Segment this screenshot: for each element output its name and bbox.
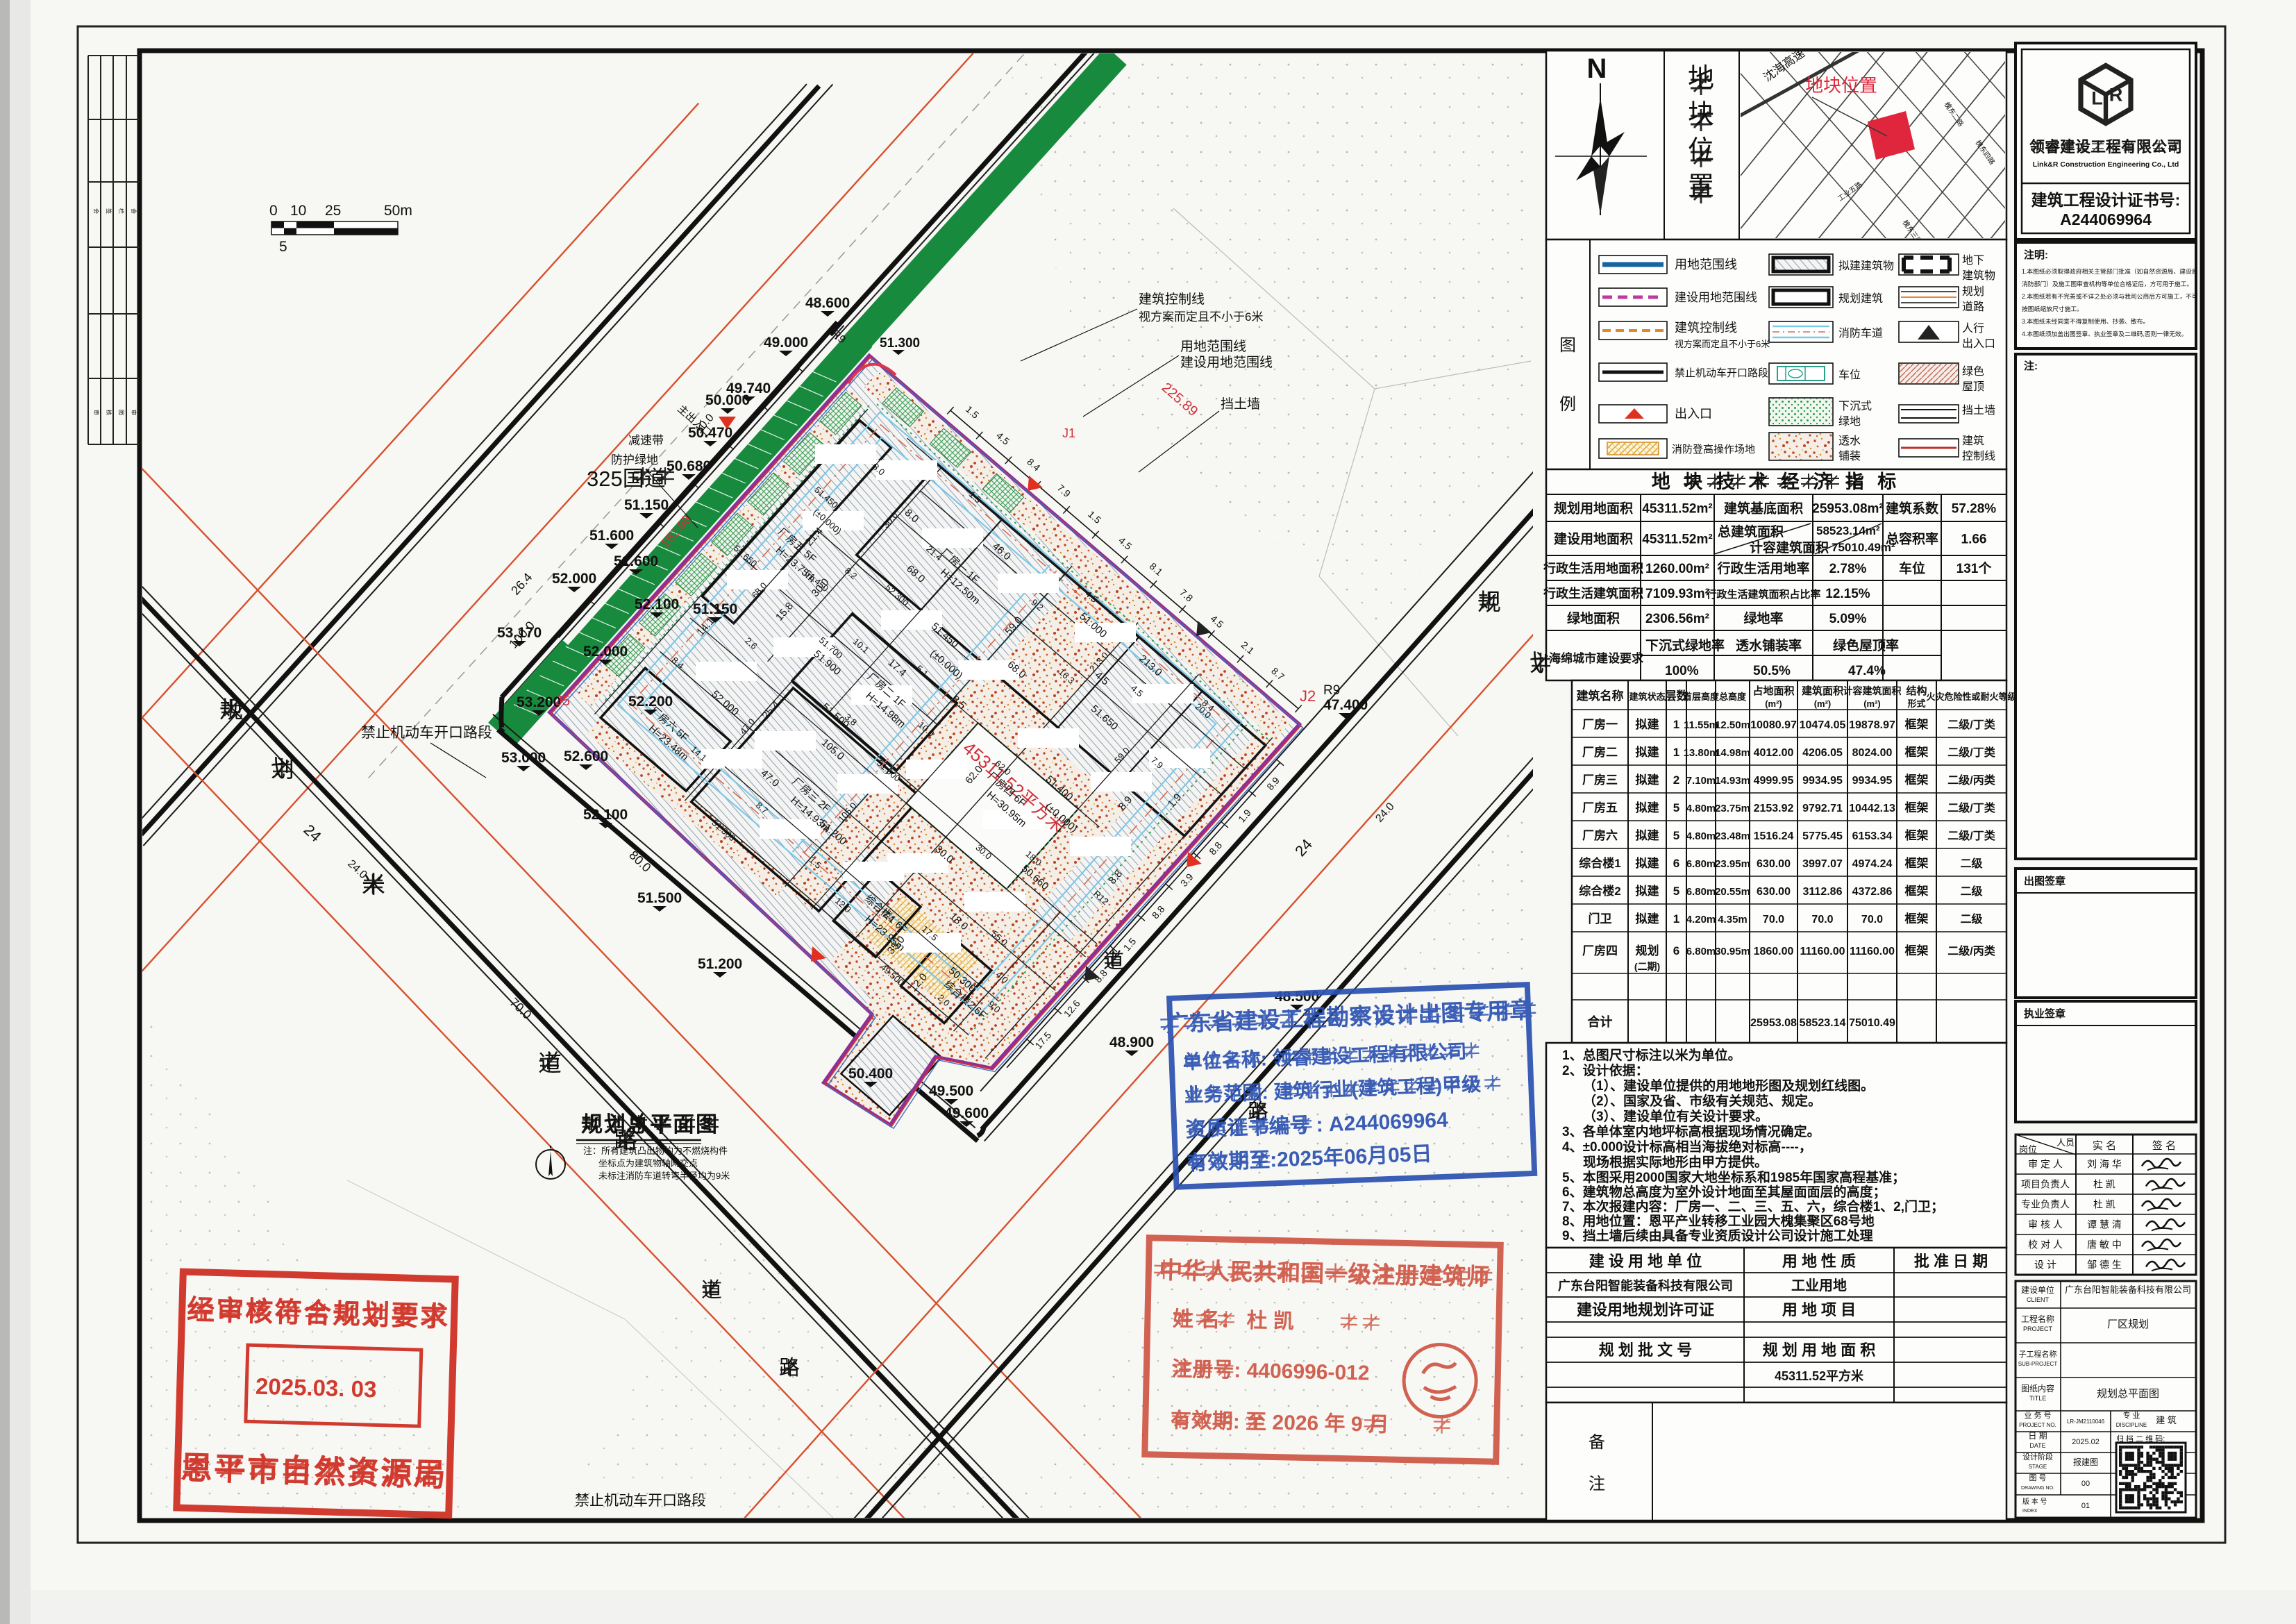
svg-text:00: 00 (2081, 1480, 2090, 1488)
svg-text:9792.71: 9792.71 (1802, 803, 1843, 814)
svg-text:二级/丁类: 二级/丁类 (1947, 801, 1995, 814)
svg-text:结构: 结构 (1906, 685, 1927, 697)
svg-text:拟建建筑物: 拟建建筑物 (1838, 260, 1894, 272)
svg-text:10: 10 (290, 203, 306, 219)
svg-text:30.95m: 30.95m (1715, 946, 1750, 957)
svg-text:49.600: 49.600 (944, 1105, 989, 1121)
svg-text:刘 海 华: 刘 海 华 (2087, 1159, 2122, 1170)
svg-text:3112.86: 3112.86 (1803, 886, 1843, 898)
svg-text:1516.24: 1516.24 (1754, 830, 1794, 842)
svg-text:6.80m: 6.80m (1686, 946, 1716, 957)
svg-text:绿地面积: 绿地面积 (1567, 610, 1620, 626)
svg-text:DATE: DATE (2029, 1442, 2045, 1449)
svg-text:规划用地面积: 规划用地面积 (1554, 501, 1633, 517)
svg-text:拟建: 拟建 (1636, 745, 1659, 759)
svg-text:7.10m: 7.10m (1686, 775, 1716, 787)
svg-text:建设用地规划许可证: 建设用地规划许可证 (1577, 1301, 1714, 1319)
svg-text:52.100: 52.100 (583, 807, 628, 823)
svg-text:综合楼1: 综合楼1 (1579, 856, 1620, 870)
svg-text:70.0: 70.0 (1763, 914, 1784, 926)
svg-text:STAGE: STAGE (2029, 1464, 2047, 1470)
svg-text:综合楼2: 综合楼2 (1579, 884, 1620, 898)
svg-text:14.98m: 14.98m (1715, 747, 1750, 759)
svg-text:70.0: 70.0 (1811, 914, 1833, 926)
svg-text:二级: 二级 (1960, 885, 1983, 898)
svg-text:5: 5 (279, 239, 287, 255)
svg-text:铺装: 铺装 (1838, 450, 1861, 462)
svg-text:58523.14m²: 58523.14m² (1816, 524, 1880, 537)
svg-text:A244069964: A244069964 (2060, 210, 2152, 228)
svg-text:12.15%: 12.15% (1825, 587, 1870, 601)
svg-text:25953.08: 25953.08 (1750, 1017, 1797, 1029)
svg-text:总高度: 总高度 (1719, 692, 1747, 702)
svg-text:禁止机动车开口路段: 禁止机动车开口路段 (1675, 367, 1768, 379)
svg-text:CLIENT: CLIENT (2027, 1296, 2050, 1303)
svg-text:4.80m: 4.80m (1686, 803, 1716, 814)
svg-text:4.80m: 4.80m (1686, 830, 1716, 842)
svg-text:框架: 框架 (1905, 828, 1929, 842)
svg-text:二级/丁类: 二级/丁类 (1947, 746, 1995, 759)
svg-text:形式: 形式 (1907, 698, 1925, 709)
svg-text:48.600: 48.600 (805, 295, 850, 311)
svg-text:4、±0.000设计标高相当海拔绝对标高----，: 4、±0.000设计标高相当海拔绝对标高----， (1562, 1139, 1812, 1155)
svg-text:签 名: 签 名 (2152, 1140, 2176, 1152)
svg-text:下沉式: 下沉式 (1838, 400, 1872, 412)
svg-text:51.150: 51.150 (693, 601, 737, 617)
svg-text:51.300: 51.300 (880, 336, 920, 351)
svg-text:二级/丁类: 二级/丁类 (1947, 829, 1995, 842)
svg-text:11160.00: 11160.00 (1850, 946, 1895, 957)
svg-text:1.本图纸必须取得政府相关主管部门批准（如自然资源局、建设局: 1.本图纸必须取得政府相关主管部门批准（如自然资源局、建设局 (2022, 267, 2198, 275)
svg-text:48.900: 48.900 (1109, 1035, 1154, 1050)
svg-text:拟建: 拟建 (1636, 773, 1659, 787)
svg-text:6、建筑物总高度为室外设计地面至其屋面面层的高度；: 6、建筑物总高度为室外设计地面至其屋面面层的高度； (1562, 1184, 1886, 1200)
svg-text:52.100: 52.100 (635, 596, 679, 612)
svg-text:4012.00: 4012.00 (1754, 747, 1794, 759)
svg-text:25953.08m²: 25953.08m² (1812, 502, 1883, 517)
svg-text:2.本图纸若有不完善或不详之处必须与我司公商后方可施工，不可: 2.本图纸若有不完善或不详之处必须与我司公商后方可施工，不可 (2022, 292, 2198, 300)
svg-text:透水铺装率: 透水铺装率 (1736, 637, 1802, 653)
svg-text:框架: 框架 (1905, 717, 1929, 731)
svg-text:图 号: 图 号 (2029, 1473, 2046, 1482)
svg-text:1、总图尺寸标注以米为单位。: 1、总图尺寸标注以米为单位。 (1562, 1047, 1741, 1063)
svg-text:规划: 规划 (1962, 285, 1984, 298)
svg-text:禁止机动车开口路段: 禁止机动车开口路段 (575, 1493, 706, 1509)
svg-text:建设用地面积: 建设用地面积 (1554, 531, 1633, 547)
svg-text:52.600: 52.600 (564, 748, 608, 764)
svg-text:2.78%: 2.78% (1829, 562, 1867, 576)
svg-text:6.80m: 6.80m (1686, 886, 1716, 898)
svg-text:地块位置: 地块位置 (1805, 75, 1877, 96)
svg-text:谭 慧 清: 谭 慧 清 (2087, 1219, 2122, 1230)
svg-text:6.80m: 6.80m (1686, 858, 1716, 870)
svg-text:拟建: 拟建 (1636, 828, 1659, 842)
svg-text:1: 1 (1673, 912, 1679, 926)
svg-text:占地面积: 占地面积 (1752, 685, 1794, 697)
svg-text:厂房二: 厂房二 (1582, 745, 1618, 759)
svg-text:设 计: 设 计 (2034, 1259, 2056, 1271)
svg-text:11160.00: 11160.00 (1800, 946, 1845, 957)
svg-text:框架: 框架 (1905, 856, 1929, 870)
svg-text:J1: J1 (1062, 426, 1075, 440)
svg-text:绿色屋顶率: 绿色屋顶率 (1833, 637, 1899, 653)
svg-text:批 准 日 期: 批 准 日 期 (1914, 1253, 1988, 1270)
svg-text:规划建筑: 规划建筑 (1838, 292, 1883, 305)
svg-text:PROJECT NO.: PROJECT NO. (2019, 1422, 2056, 1428)
svg-text:建筑工程设计证书号:: 建筑工程设计证书号: (2031, 191, 2181, 209)
svg-text:会: 会 (131, 208, 137, 214)
svg-text:二级/丙类: 二级/丙类 (1947, 773, 1995, 787)
svg-text:7、本次报建内容：厂房一、二、三、五、六，综合楼1、2,门卫: 7、本次报建内容：厂房一、二、三、五、六，综合楼1、2,门卫； (1562, 1198, 1944, 1214)
svg-text:行政生活用地面积: 行政生活用地面积 (1543, 561, 1643, 576)
svg-text:专 业: 专 业 (2122, 1410, 2140, 1420)
svg-text:10080.97: 10080.97 (1750, 719, 1797, 731)
svg-text:专业负责人: 专业负责人 (2021, 1199, 2070, 1210)
svg-text:建筑基底面积: 建筑基底面积 (1724, 501, 1803, 517)
svg-text:建筑名称: 建筑名称 (1577, 689, 1624, 703)
svg-text:注:: 注: (2024, 360, 2038, 372)
svg-text:建筑物: 建筑物 (1962, 269, 1995, 282)
svg-text:规划总平面图: 规划总平面图 (2097, 1388, 2159, 1400)
svg-text:注明:: 注明: (2024, 249, 2048, 261)
svg-text:二级: 二级 (1960, 857, 1983, 870)
svg-text:INDEX: INDEX (2022, 1509, 2038, 1514)
svg-text:车位: 车位 (1899, 560, 1925, 576)
svg-text:版 本 号: 版 本 号 (2022, 1497, 2047, 1506)
svg-text:2: 2 (1673, 773, 1679, 787)
svg-text:人员: 人员 (2056, 1137, 2075, 1148)
svg-text:建筑面积: 建筑面积 (1802, 685, 1843, 697)
svg-text:二级: 二级 (1960, 912, 1983, 926)
svg-text:行政生活建筑面积: 行政生活建筑面积 (1543, 586, 1643, 601)
svg-text:12.50m: 12.50m (1715, 719, 1750, 731)
svg-text:5: 5 (1673, 829, 1679, 842)
svg-text:执业签章: 执业签章 (2024, 1007, 2065, 1020)
svg-text:框架: 框架 (1905, 884, 1929, 898)
svg-text:1260.00m²: 1260.00m² (1645, 562, 1709, 576)
svg-text:3.本图纸未经同意不得复制使用、抄袭、散布。: 3.本图纸未经同意不得复制使用、抄袭、散布。 (2022, 317, 2149, 325)
svg-text:下沉式绿地率: 下沉式绿地率 (1645, 637, 1725, 653)
svg-text:9、挡土墙后续由具备专业资质设计公司设计施工处理: 9、挡土墙后续由具备专业资质设计公司设计施工处理 (1562, 1228, 1873, 1244)
svg-text:建筑控制线: 建筑控制线 (1675, 321, 1737, 335)
svg-text:52.200: 52.200 (628, 694, 673, 710)
svg-text:4999.95: 4999.95 (1754, 775, 1794, 787)
svg-text:2、设计依据：: 2、设计依据： (1562, 1062, 1649, 1078)
svg-text:厂房六: 厂房六 (1582, 828, 1618, 842)
svg-text:建设用地范围线: 建设用地范围线 (1180, 355, 1273, 370)
svg-text:规划总平面图: 规划总平面图 (581, 1112, 719, 1137)
svg-text:PROJECT: PROJECT (2023, 1325, 2053, 1332)
svg-text:挡土墙: 挡土墙 (1962, 404, 1995, 417)
svg-text:5: 5 (1673, 801, 1679, 814)
svg-text:会: 会 (93, 208, 100, 214)
svg-text:52.000: 52.000 (583, 644, 628, 660)
svg-text:47.4%: 47.4% (1848, 664, 1886, 678)
svg-text:广东台阳智能装备科技有限公司: 广东台阳智能装备科技有限公司 (2065, 1284, 2191, 1295)
svg-text:二级/丙类: 二级/丙类 (1947, 944, 1995, 957)
svg-text:签: 签 (106, 208, 112, 214)
svg-text:出图签章: 出图签章 (2024, 875, 2065, 887)
svg-text:屋顶: 屋顶 (1962, 380, 1984, 393)
svg-text:3、各单体室内地坪标高根据现场情况确定。: 3、各单体室内地坪标高根据现场情况确定。 (1562, 1123, 1820, 1139)
svg-text:5.09%: 5.09% (1829, 612, 1867, 626)
svg-text:4372.86: 4372.86 (1852, 886, 1893, 898)
svg-text:52.000: 52.000 (552, 571, 596, 587)
svg-text:建 设 用 地 单 位: 建 设 用 地 单 位 (1589, 1253, 1702, 1270)
svg-text:未标注消防车道转弯半径均为9米: 未标注消防车道转弯半径均为9米 (598, 1171, 730, 1181)
svg-text:透水: 透水 (1838, 435, 1861, 447)
svg-text:1860.00: 1860.00 (1754, 946, 1794, 957)
svg-text:注: 注 (1589, 1475, 1605, 1493)
svg-text:51.200: 51.200 (698, 956, 742, 972)
svg-text:58523.14: 58523.14 (1800, 1017, 1846, 1029)
svg-text:10442.13: 10442.13 (1849, 803, 1895, 814)
svg-text:厂房一: 厂房一 (1582, 717, 1618, 731)
svg-text:姓 名： 杜 凯: 姓 名： 杜 凯 (1173, 1307, 1295, 1333)
svg-text:6: 6 (1673, 944, 1679, 957)
svg-text:防护绿地: 防护绿地 (611, 453, 658, 467)
svg-text:行政生活用地率: 行政生活用地率 (1716, 560, 1809, 576)
svg-text:车位: 车位 (1838, 369, 1861, 381)
svg-text:4.本图纸须加盖出图签章、执业签章及二维码,否则一律无效。: 4.本图纸须加盖出图签章、执业签章及二维码,否则一律无效。 (2022, 330, 2188, 337)
svg-text:7109.93m²: 7109.93m² (1645, 587, 1709, 601)
svg-text:4974.24: 4974.24 (1852, 858, 1893, 870)
svg-text:厂房三: 厂房三 (1582, 773, 1618, 787)
svg-text:23.48m: 23.48m (1715, 830, 1750, 842)
svg-text:53.000: 53.000 (501, 750, 546, 766)
svg-text:拟建: 拟建 (1636, 801, 1659, 814)
svg-text:10474.05: 10474.05 (1800, 719, 1846, 731)
svg-text:25: 25 (325, 203, 341, 219)
svg-text:3997.07: 3997.07 (1802, 858, 1843, 870)
svg-text:4.35m: 4.35m (1718, 914, 1748, 926)
svg-text:49.500: 49.500 (929, 1083, 973, 1099)
svg-text:绿地: 绿地 (1838, 415, 1861, 428)
svg-text:消防车道: 消防车道 (1838, 327, 1883, 340)
svg-text:杜 凯: 杜 凯 (2093, 1199, 2115, 1210)
svg-text:栏: 栏 (118, 208, 125, 214)
svg-text:20.55m: 20.55m (1715, 886, 1750, 898)
svg-text:1: 1 (1673, 718, 1679, 731)
svg-text:控制线: 控制线 (1962, 450, 1995, 462)
svg-text:拟建: 拟建 (1636, 884, 1659, 898)
svg-text:厂房四: 厂房四 (1582, 944, 1618, 957)
svg-text:13.80m: 13.80m (1684, 747, 1719, 759)
svg-text:拟建: 拟建 (1636, 717, 1659, 731)
svg-text:(二期): (二期) (1634, 961, 1660, 972)
svg-text:审 核 人: 审 核 人 (2028, 1219, 2063, 1230)
svg-text:框架: 框架 (1905, 944, 1929, 957)
svg-text:8、用地位置：恩平产业转移工业园大槐集聚区68号地: 8、用地位置：恩平产业转移工业园大槐集聚区68号地 (1562, 1213, 1875, 1229)
svg-text:DRAWING NO.: DRAWING NO. (2021, 1486, 2054, 1491)
svg-text:630.00: 630.00 (1757, 858, 1791, 870)
svg-text:火灾危险性或耐火等级: 火灾危险性或耐火等级 (1926, 692, 2017, 702)
svg-text:（3）、建设单位有关设计要求。: （3）、建设单位有关设计要求。 (1583, 1108, 1768, 1124)
svg-text:规 划 用 地 面 积: 规 划 用 地 面 积 (1763, 1341, 1876, 1359)
svg-text:图纸内容: 图纸内容 (2021, 1383, 2054, 1393)
svg-text:0: 0 (269, 203, 278, 219)
svg-text:建 筑: 建 筑 (2156, 1415, 2177, 1425)
svg-text:2025.03. 03: 2025.03. 03 (255, 1373, 377, 1403)
svg-text:道路: 道路 (1962, 301, 1984, 313)
svg-text:项目负责人: 项目负责人 (2021, 1179, 2070, 1190)
svg-text:45311.52m²: 45311.52m² (1642, 533, 1712, 547)
svg-text:用地范围线: 用地范围线 (1180, 339, 1246, 354)
svg-text:消防部门）及施工图审查机构等单位合格证后，方可用于施工。: 消防部门）及施工图审查机构等单位合格证后，方可用于施工。 (2022, 280, 2193, 287)
svg-text:审 定 人: 审 定 人 (2028, 1159, 2063, 1170)
svg-text:地 块 技 术 经 济 指 标: 地 块 技 术 经 济 指 标 (1652, 471, 1901, 492)
svg-text:SUB-PROJECT: SUB-PROJECT (2018, 1361, 2058, 1367)
svg-text:框架: 框架 (1905, 745, 1929, 759)
svg-text:建筑状态: 建筑状态 (1629, 692, 1665, 702)
svg-text:行政生活建筑面积占比率: 行政生活建筑面积占比率 (1705, 588, 1820, 601)
svg-text:131个: 131个 (1956, 561, 1993, 576)
svg-text:视方案而定且不小于6米: 视方案而定且不小于6米 (1139, 310, 1263, 324)
svg-text:工业用地: 工业用地 (1791, 1278, 1847, 1294)
svg-text:实 名: 实 名 (2093, 1140, 2116, 1152)
svg-text:绿色: 绿色 (1962, 365, 1984, 378)
svg-text:消防登高操作场地: 消防登高操作场地 (1672, 444, 1755, 455)
svg-text:(m²): (m²) (1765, 698, 1782, 709)
svg-text:坐标点为建筑物轴网交点: 坐标点为建筑物轴网交点 (598, 1158, 698, 1169)
svg-text:11.55m: 11.55m (1684, 719, 1718, 731)
svg-text:50m: 50m (384, 203, 412, 219)
svg-text:现场根据实际地形由甲方提供。: 现场根据实际地形由甲方提供。 (1583, 1154, 1768, 1170)
svg-text:总容积率: 总容积率 (1886, 531, 1938, 547)
svg-text:核: 核 (106, 410, 112, 415)
svg-text:DISCIPLINE: DISCIPLINE (2116, 1422, 2147, 1428)
svg-text:子工程名称: 子工程名称 (2019, 1349, 2057, 1359)
svg-text:邹 德 生: 邹 德 生 (2087, 1259, 2122, 1271)
svg-text:用 地 项 目: 用 地 项 目 (1782, 1301, 1856, 1319)
svg-text:LR-JM2110046: LR-JM2110046 (2067, 1418, 2105, 1425)
svg-text:19878.97: 19878.97 (1849, 719, 1895, 731)
svg-text:J2: J2 (1300, 687, 1316, 705)
svg-text:4.20m: 4.20m (1686, 914, 1716, 926)
svg-text:拟建: 拟建 (1636, 856, 1659, 870)
svg-text:70.0: 70.0 (1861, 914, 1883, 926)
svg-text:业 务 号: 业 务 号 (2024, 1411, 2051, 1420)
svg-text:出入口: 出入口 (1675, 407, 1712, 421)
svg-text:R: R (2109, 84, 2123, 106)
svg-text:51.150: 51.150 (624, 497, 669, 513)
svg-text:100%: 100% (1665, 664, 1699, 678)
svg-text:51.600: 51.600 (589, 528, 634, 544)
svg-text:49.000: 49.000 (764, 335, 808, 351)
svg-text:（2）、国家及省、市级有关规范、规定。: （2）、国家及省、市级有关规范、规定。 (1583, 1093, 1821, 1109)
svg-text:备: 备 (1589, 1433, 1605, 1452)
svg-text:6: 6 (1673, 857, 1679, 870)
svg-text:(m²): (m²) (1814, 698, 1832, 709)
svg-text:门卫: 门卫 (1589, 912, 1612, 926)
svg-text:设计阶段: 设计阶段 (2022, 1452, 2053, 1462)
svg-text:Link&R Construction Engineerin: Link&R Construction Engineering Co., Ltd (2033, 160, 2179, 169)
svg-text:1.66: 1.66 (1961, 533, 1987, 547)
svg-text:挡土墙: 挡土墙 (1221, 396, 1260, 412)
svg-text:630.00: 630.00 (1757, 886, 1791, 898)
svg-text:5775.45: 5775.45 (1802, 830, 1843, 842)
svg-text:9934.95: 9934.95 (1852, 775, 1893, 787)
svg-text:杜 凯: 杜 凯 (2093, 1179, 2115, 1190)
svg-text:规 划 批 文 号: 规 划 批 文 号 (1599, 1341, 1692, 1359)
svg-text:出入口: 出入口 (1962, 337, 1995, 350)
svg-text:广东台阳智能装备科技有限公司: 广东台阳智能装备科技有限公司 (1558, 1278, 1733, 1293)
svg-text:地下: 地下 (1962, 254, 1984, 267)
svg-text:57.28%: 57.28% (1952, 502, 1997, 517)
svg-text:建筑系数: 建筑系数 (1886, 501, 1939, 517)
svg-text:审: 审 (93, 410, 100, 415)
svg-text:用 地 性 质: 用 地 性 质 (1782, 1253, 1856, 1270)
svg-text:规划: 规划 (1636, 944, 1659, 957)
svg-text:计容建筑面积: 计容建筑面积 (1843, 685, 1902, 696)
svg-text:审: 审 (131, 410, 137, 415)
svg-text:2306.56m²: 2306.56m² (1645, 612, 1709, 626)
svg-text:总建筑面积: 总建筑面积 (1718, 524, 1784, 539)
svg-text:45311.52m²: 45311.52m² (1642, 502, 1712, 517)
svg-text:拟建: 拟建 (1636, 912, 1659, 926)
svg-text:减速带: 减速带 (628, 434, 664, 447)
svg-text:53.200: 53.200 (517, 694, 561, 710)
svg-text:L: L (2091, 87, 2103, 108)
svg-text:45311.52平方米: 45311.52平方米 (1775, 1368, 1864, 1383)
svg-text:恩平市自然资源局: 恩平市自然资源局 (180, 1450, 447, 1493)
svg-text:岗位: 岗位 (2019, 1144, 2037, 1155)
svg-text:J5: J5 (555, 694, 570, 709)
svg-text:TITLE: TITLE (2029, 1395, 2047, 1402)
svg-text:R9: R9 (1323, 683, 1340, 698)
svg-text:50.5%: 50.5% (1753, 664, 1791, 678)
svg-text:视方案而定且不小于6米: 视方案而定且不小于6米 (1675, 339, 1770, 349)
svg-text:50.000: 50.000 (705, 392, 750, 408)
svg-text:51.500: 51.500 (637, 890, 682, 906)
svg-text:合计: 合计 (1588, 1014, 1613, 1029)
svg-text:框架: 框架 (1905, 801, 1929, 814)
svg-text:47.400: 47.400 (1323, 697, 1368, 713)
svg-text:建筑: 建筑 (1962, 435, 1984, 447)
svg-text:首层高度: 首层高度 (1683, 692, 1720, 702)
svg-text:建筑控制线: 建筑控制线 (1139, 292, 1205, 307)
svg-text:框架: 框架 (1905, 912, 1929, 926)
svg-text:日 期: 日 期 (2028, 1431, 2047, 1441)
svg-text:报建图: 报建图 (2073, 1457, 2098, 1467)
svg-text:23.75m: 23.75m (1715, 803, 1750, 814)
svg-text:校 对 人: 校 对 人 (2028, 1239, 2063, 1250)
svg-text:按图纸缩放尺寸施工。: 按图纸缩放尺寸施工。 (2022, 305, 2083, 312)
svg-text:5: 5 (1673, 885, 1679, 898)
svg-text:4206.05: 4206.05 (1802, 747, 1843, 759)
svg-text:23.95m: 23.95m (1715, 858, 1750, 870)
svg-text:01: 01 (2081, 1502, 2090, 1510)
svg-text:海绵城市建设要求: 海绵城市建设要求 (1549, 651, 1643, 665)
svg-text:51.600: 51.600 (614, 553, 658, 569)
svg-text:2025.02: 2025.02 (2072, 1438, 2100, 1446)
svg-text:(m²): (m²) (1863, 698, 1881, 709)
svg-text:N: N (1587, 53, 1607, 84)
svg-text:二级/丁类: 二级/丁类 (1947, 718, 1995, 731)
svg-text:禁止机动车开口路段: 禁止机动车开口路段 (361, 725, 492, 741)
svg-text:6153.34: 6153.34 (1852, 830, 1893, 842)
svg-text:厂区规划: 厂区规划 (2107, 1319, 2149, 1330)
svg-text:注：所有建筑凸出物均为不燃烧构件: 注：所有建筑凸出物均为不燃烧构件 (583, 1146, 728, 1156)
svg-text:建设用地范围线: 建设用地范围线 (1675, 291, 1757, 304)
svg-text:人行: 人行 (1962, 322, 1984, 335)
svg-text:50.400: 50.400 (848, 1066, 893, 1082)
svg-text:建设单位: 建设单位 (2021, 1284, 2054, 1295)
svg-text:1: 1 (1673, 746, 1679, 759)
svg-text:用地范围线: 用地范围线 (1675, 258, 1737, 271)
svg-text:例: 例 (1559, 395, 1576, 414)
svg-text:图: 图 (118, 410, 124, 415)
